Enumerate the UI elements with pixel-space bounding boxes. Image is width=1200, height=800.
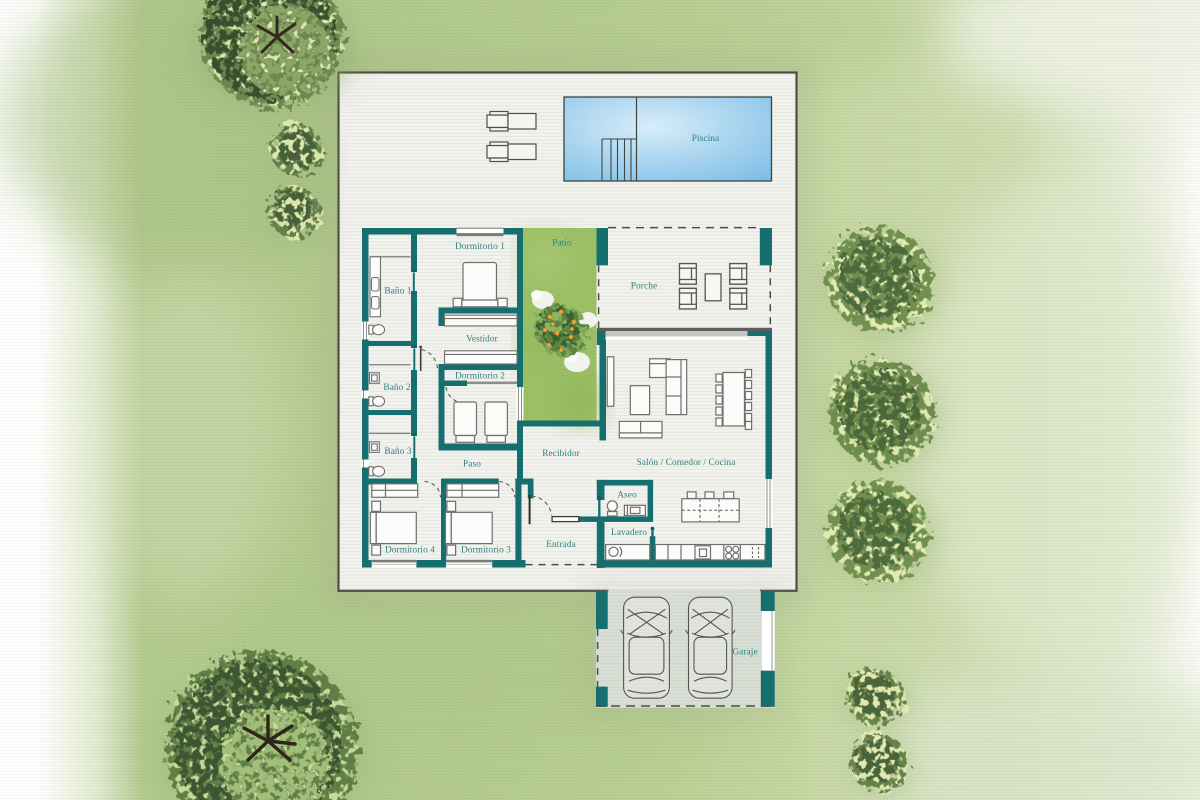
svg-text:Piscina: Piscina (692, 134, 720, 144)
svg-text:Baño 2: Baño 2 (383, 383, 410, 393)
svg-text:Porche: Porche (631, 282, 657, 292)
svg-text:Patio: Patio (552, 239, 572, 249)
svg-text:Dormitorio 1: Dormitorio 1 (455, 242, 505, 252)
svg-text:Baño 1: Baño 1 (384, 287, 411, 297)
svg-text:Entrada: Entrada (546, 540, 576, 550)
svg-text:Dormitorio 4: Dormitorio 4 (385, 546, 435, 556)
svg-text:Garaje: Garaje (732, 648, 757, 658)
svg-text:Recibidor: Recibidor (542, 449, 580, 459)
svg-text:Dormitorio 3: Dormitorio 3 (461, 546, 511, 556)
svg-text:Baño 3: Baño 3 (384, 447, 411, 457)
svg-text:Aseo: Aseo (617, 491, 637, 501)
svg-text:Dormitorio 2: Dormitorio 2 (455, 372, 505, 382)
svg-text:Paso: Paso (463, 460, 481, 470)
svg-text:Salón / Comedor / Cocina: Salón / Comedor / Cocina (637, 458, 736, 468)
svg-text:Vestidor: Vestidor (466, 335, 499, 345)
svg-text:Lavadero: Lavadero (611, 528, 647, 538)
